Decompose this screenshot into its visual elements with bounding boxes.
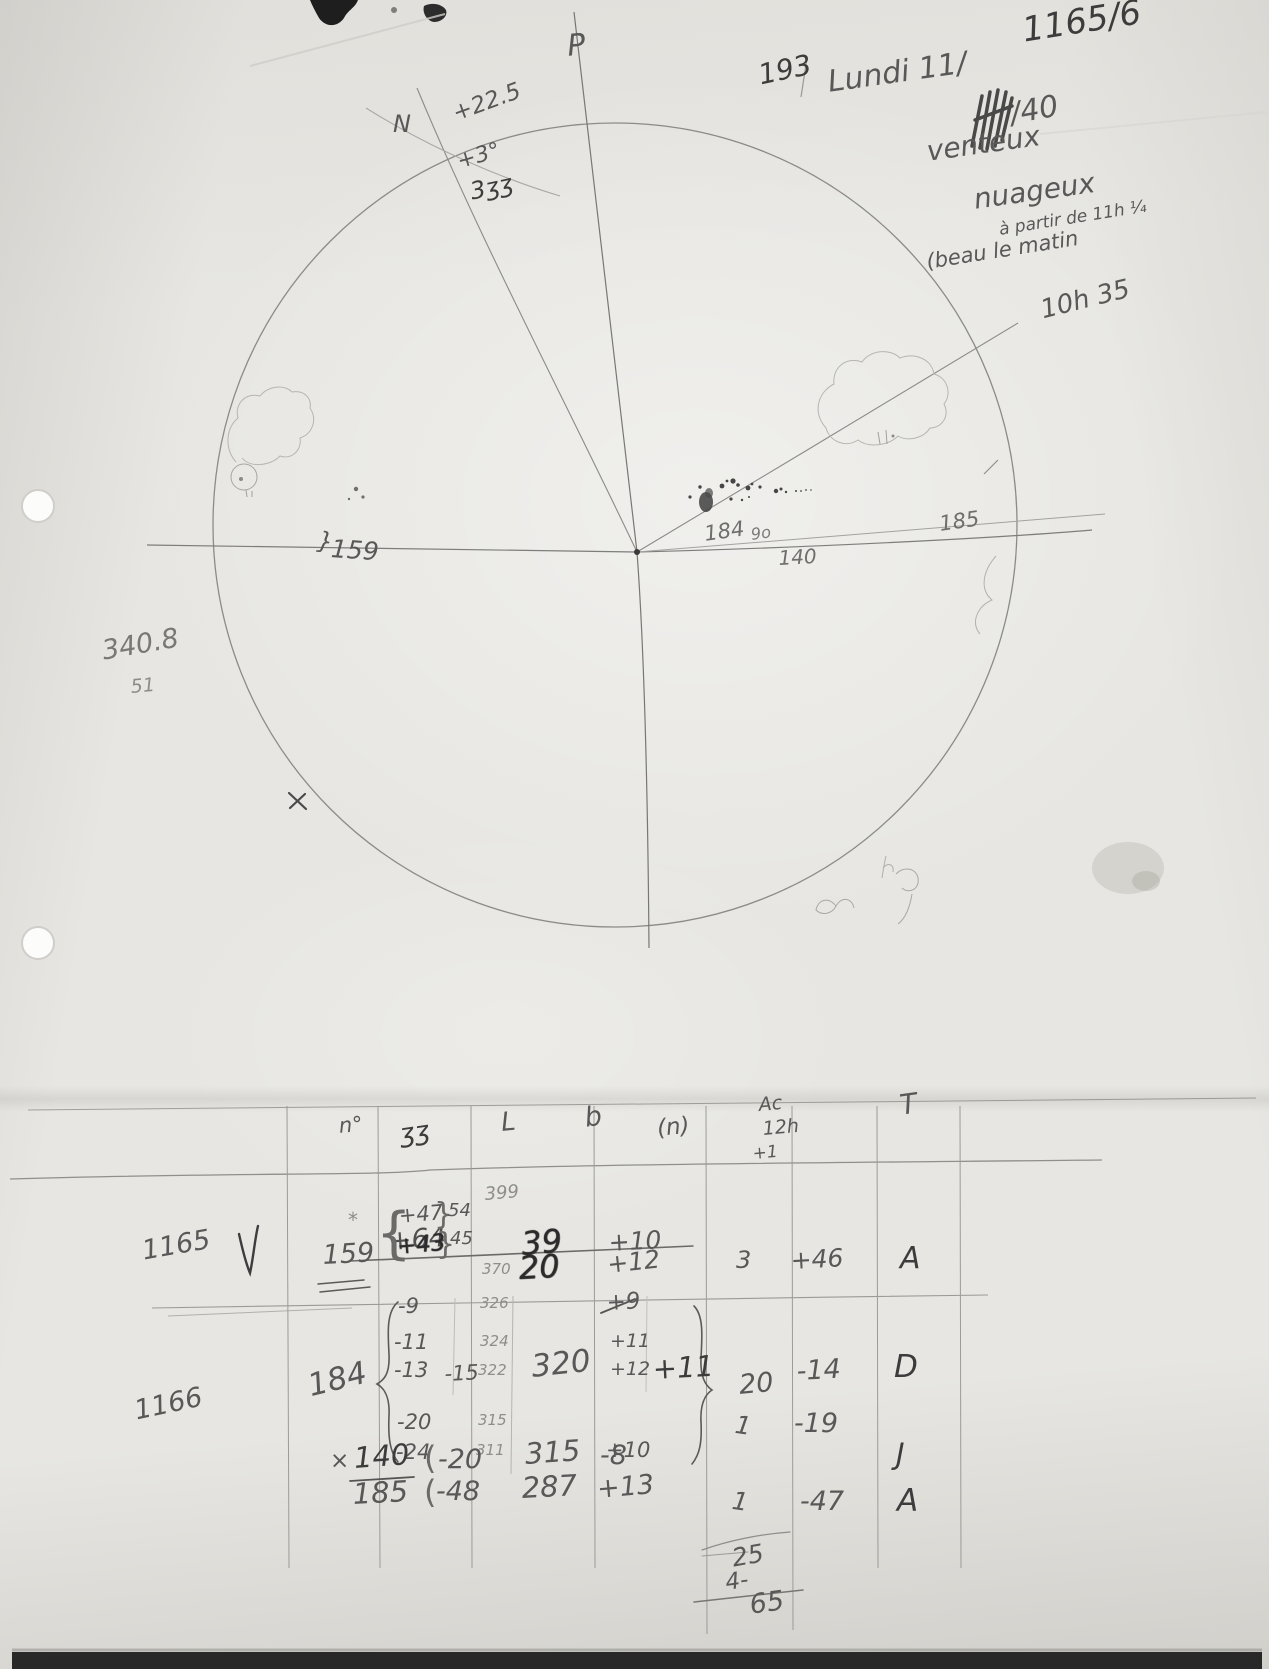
row-1165-ac: +46: [790, 1245, 844, 1273]
header-underline-rule: [10, 1160, 1102, 1179]
group-159-underline-1: [318, 1280, 364, 1284]
row-185-type: A: [897, 1486, 918, 1517]
row-140-c2: -20: [438, 1446, 482, 1473]
header-number: n°: [338, 1114, 364, 1137]
sub-col-line-b: [511, 1296, 513, 1474]
row-1166-n: 20: [738, 1369, 775, 1399]
row-1166-c2-2: -13: [394, 1360, 428, 1381]
row-140-prefix: ×: [330, 1450, 349, 1473]
stain-dark: [1132, 871, 1160, 891]
row-1166-close-brace: [692, 1306, 712, 1464]
group-184-note: 9o: [750, 524, 772, 543]
left-cloud-doodle: [228, 387, 314, 465]
row-185-group: 185: [352, 1477, 409, 1509]
row-185-paren: (: [424, 1476, 436, 1508]
row-separator-rule: [152, 1295, 988, 1308]
row-1165-b: +12: [606, 1246, 661, 1276]
margin-value-bottom: 51: [130, 676, 156, 697]
right-cloud-doodle: [818, 352, 948, 445]
header-latitude: b: [583, 1103, 604, 1132]
scribble-3: [896, 869, 918, 924]
row-1166-ac: -14: [796, 1356, 841, 1385]
row-1165-n: 3: [736, 1248, 751, 1272]
north-radial-line: [417, 88, 637, 552]
row-1165-mark: *: [348, 1210, 358, 1230]
row-140-ac: -19: [794, 1410, 838, 1437]
group-159-label: 159: [330, 536, 379, 564]
header-ac-12h: 12h: [762, 1117, 800, 1139]
col-line-7: [877, 1106, 878, 1568]
group-140-label: 140: [778, 546, 817, 568]
row-1166-l-2: 322: [478, 1363, 507, 1378]
header-ac-plus1: +1: [752, 1144, 778, 1163]
header-ac: Ac: [758, 1094, 783, 1115]
edge-tick: [984, 460, 998, 474]
row-1165-l: 20: [518, 1250, 560, 1284]
scribble-m: [816, 899, 854, 913]
scanned-observation-sheet: 1165/6 193 Lundi 11/ /40 venteux nuageux…: [0, 0, 1269, 1669]
row-1165-type: A: [900, 1244, 921, 1274]
scribble-h: [882, 856, 893, 878]
row-140-group: 140: [353, 1440, 410, 1473]
row-1165-c2-line1-sub: 54: [448, 1202, 471, 1220]
hole-punch-top: [22, 490, 54, 522]
pencil-doodles: [228, 352, 996, 924]
pencil-drawing-layer: [0, 0, 1269, 1669]
row-1165-struck-l: 399: [484, 1183, 520, 1204]
polar-axis-line: [574, 12, 649, 948]
small-circle-doodle: [231, 464, 257, 490]
row-140-paren: (: [424, 1442, 436, 1474]
disk-center-dot: [634, 549, 640, 555]
row-140-l: 315: [524, 1436, 581, 1469]
row-1166-l-3: 315: [478, 1413, 507, 1428]
row-185-b: +13: [596, 1471, 655, 1503]
check-mark: [239, 1226, 258, 1273]
hole-punch-bottom: [22, 927, 54, 959]
row-1166-b-0: +11: [610, 1332, 650, 1351]
row-1166-l-1: 324: [480, 1334, 509, 1349]
row-1166-l-0: 326: [480, 1296, 509, 1311]
header-longitude: L: [500, 1109, 517, 1136]
crease-line-2: [1040, 112, 1266, 134]
header-distance: ʒʒ: [398, 1118, 431, 1148]
row-1165-l-small: 370: [482, 1262, 511, 1277]
group-159-underline-2: [320, 1287, 370, 1292]
crease-line: [250, 14, 445, 66]
row-1166-l: 320: [530, 1346, 592, 1383]
row-1166-b-1: +12: [610, 1360, 650, 1379]
paper-speck: [391, 7, 397, 13]
row-1165-group: 159: [322, 1239, 375, 1269]
row-1166-type: D: [894, 1352, 918, 1383]
col-line-8: [960, 1106, 961, 1568]
pole-label: P: [566, 30, 587, 61]
row-1166-b-mean: +11: [652, 1352, 715, 1384]
sunspot-group-159: [348, 487, 365, 500]
right-squiggle: [976, 556, 996, 634]
col-line-6: [792, 1106, 793, 1630]
row-185-l: 287: [521, 1471, 578, 1503]
sunspot-group-184: [688, 478, 811, 512]
torn-edge-blob: [310, 0, 358, 25]
header-count: (n): [656, 1115, 691, 1141]
row-185-c2: -48: [436, 1478, 480, 1505]
row-1166-c2-3: -20: [397, 1412, 431, 1433]
col-line-1: [287, 1106, 289, 1568]
group-184-label: 184: [703, 518, 746, 544]
bottom-page-edge: [12, 1652, 1262, 1669]
row-185-ac: -47: [800, 1488, 844, 1515]
row-1166-c2-mean: -15: [444, 1362, 479, 1385]
col-line-4: [594, 1106, 595, 1568]
header-type: T: [898, 1090, 919, 1120]
row-1166-c2-0: -9: [398, 1296, 419, 1317]
row-140-type: J: [896, 1440, 905, 1469]
row-140-b: -8: [600, 1442, 627, 1469]
group-185-label: 185: [938, 508, 981, 534]
cross-mark: [289, 793, 306, 809]
north-label: N: [393, 112, 411, 136]
row-1166-b-struck: +9: [606, 1290, 641, 1315]
total-spot-count: 25: [730, 1540, 766, 1570]
row-separator-echo: [168, 1308, 352, 1316]
total-group-count: 4-: [724, 1569, 750, 1595]
paper-artifacts: [12, 0, 1266, 1669]
solar-disk-circle: [213, 123, 1017, 927]
row-1166-c2-1: -11: [394, 1332, 428, 1353]
row-1165-c2-line2-sub: 45: [450, 1230, 473, 1248]
fold-crease-shadow: [0, 1086, 1269, 1112]
total-wolf-number: 65: [748, 1587, 786, 1619]
